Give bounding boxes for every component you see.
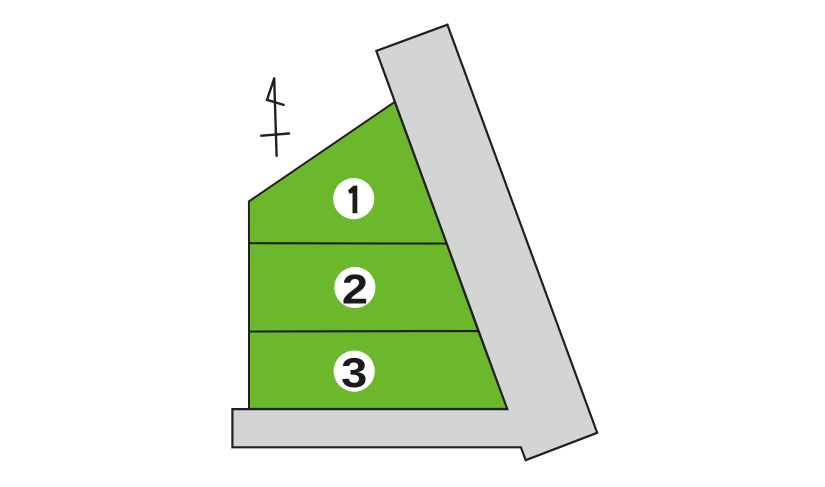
svg-text:2: 2 — [342, 267, 368, 313]
svg-text:3: 3 — [341, 350, 367, 396]
